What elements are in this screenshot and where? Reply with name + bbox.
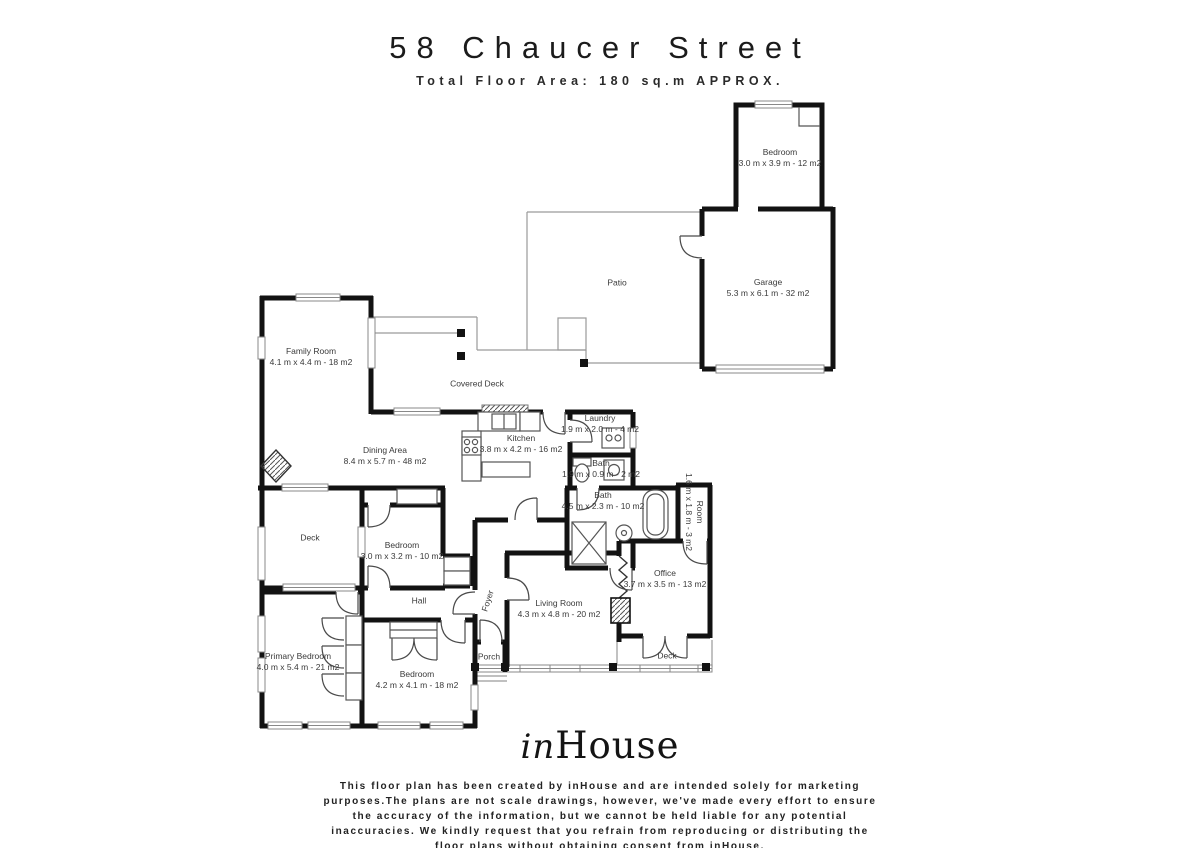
- room-label-bedroom-top: Bedroom 3.0 m x 3.9 m - 12 m2: [739, 147, 822, 169]
- floor-plan-page: 58 Chaucer Street Total Floor Area: 180 …: [0, 0, 1200, 848]
- room-label-bedroom-bottom: Bedroom 4.2 m x 4.1 m - 18 m2: [376, 669, 459, 691]
- room-label-bath-main: Bath 4.5 m x 2.3 m - 10 m2: [562, 490, 645, 512]
- room-label-dining-area: Dining Area 8.4 m x 5.7 m - 48 m2: [344, 445, 427, 467]
- inhouse-logo: inHouse: [0, 724, 1200, 767]
- room-label-primary-bedroom: Primary Bedroom 4.0 m x 5.4 m - 21 m2: [257, 651, 340, 673]
- bedroom-top-closet: [799, 107, 820, 126]
- room-label-porch: Porch: [478, 651, 500, 662]
- room-label-hall: Hall: [412, 595, 427, 606]
- room-label-room-small: Room 1.6 m x 1.8 m - 3 m2: [683, 473, 705, 551]
- room-label-living-room: Living Room 4.3 m x 4.8 m - 20 m2: [518, 598, 601, 620]
- primary-closet-1: [346, 616, 362, 645]
- room-label-garage: Garage 5.3 m x 6.1 m - 32 m2: [727, 277, 810, 299]
- primary-closet-2: [346, 645, 362, 673]
- room-label-kitchen: Kitchen 3.8 m x 4.2 m - 16 m2: [480, 433, 563, 455]
- room-label-deck-right: Deck: [657, 650, 676, 661]
- logo-serif-part: House: [555, 724, 679, 767]
- primary-closet-3: [346, 673, 362, 700]
- room-label-office: Office 3.7 m x 3.5 m - 13 m2: [624, 568, 707, 590]
- fireplace: [611, 598, 630, 623]
- walls: [258, 105, 833, 728]
- railing: [475, 665, 712, 672]
- room-label-deck-left: Deck: [300, 532, 319, 543]
- linen-closet-2: [444, 571, 470, 585]
- linen-closet-1: [444, 557, 470, 571]
- hall-closet-top: [397, 489, 437, 504]
- fridge: [520, 412, 540, 431]
- room-label-covered-deck: Covered Deck: [450, 378, 504, 389]
- logo-script-part: in: [520, 727, 555, 767]
- wood-stove: [261, 450, 291, 482]
- room-label-bedroom-mid: Bedroom 3.0 m x 3.2 m - 10 m2: [361, 540, 444, 562]
- room-label-patio: Patio: [607, 277, 626, 288]
- windows: [258, 101, 824, 729]
- disclaimer-text: This floor plan has been created by inHo…: [320, 779, 880, 848]
- room-label-laundry: Laundry 1.9 m x 2.0 m - 4 m2: [561, 413, 639, 435]
- room-label-bath-small: Bath 1.9 m x 0.9 m - 2 m2: [562, 458, 640, 480]
- kitchen-island: [482, 462, 530, 477]
- room-label-family-room: Family Room 4.1 m x 4.4 m - 18 m2: [270, 346, 353, 368]
